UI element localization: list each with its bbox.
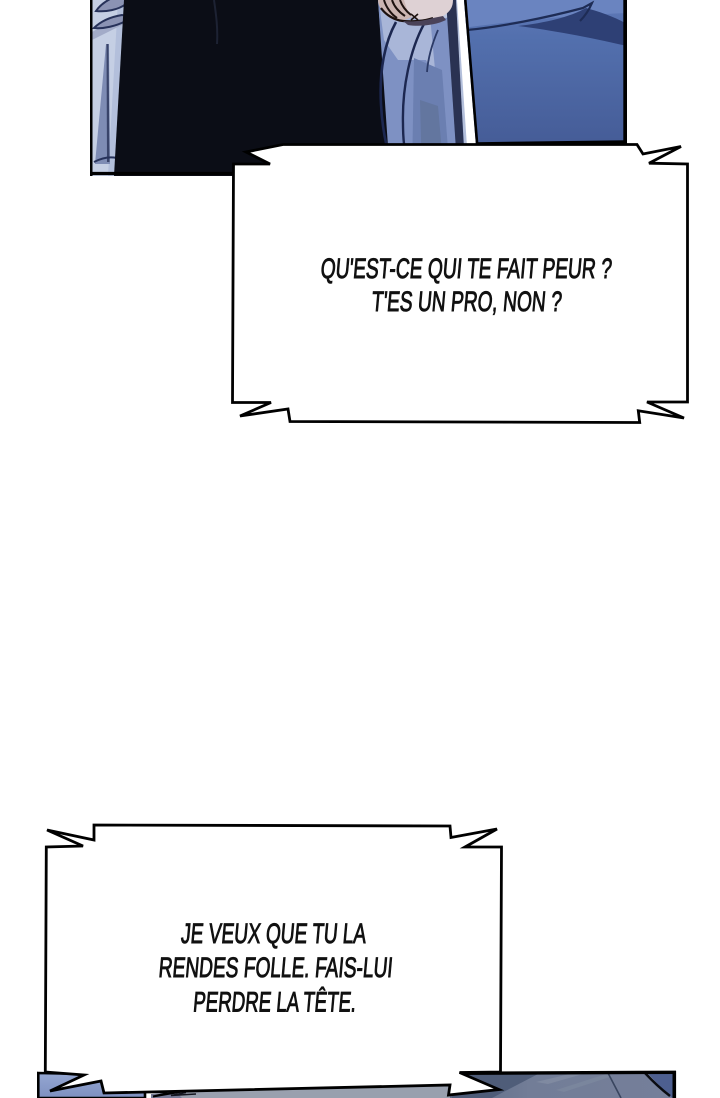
svg-text:PERDRE LA TÊTE.: PERDRE LA TÊTE.: [192, 986, 358, 1018]
svg-text:JE VEUX QUE TU LA: JE VEUX QUE TU LA: [180, 917, 368, 949]
svg-text:QU'EST-CE QUI TE FAIT PEUR ?: QU'EST-CE QUI TE FAIT PEUR ?: [319, 252, 613, 284]
svg-text:T'ES UN PRO, NON ?: T'ES UN PRO, NON ?: [370, 285, 563, 317]
svg-text:RENDES FOLLE. FAIS-LUI: RENDES FOLLE. FAIS-LUI: [157, 951, 394, 983]
